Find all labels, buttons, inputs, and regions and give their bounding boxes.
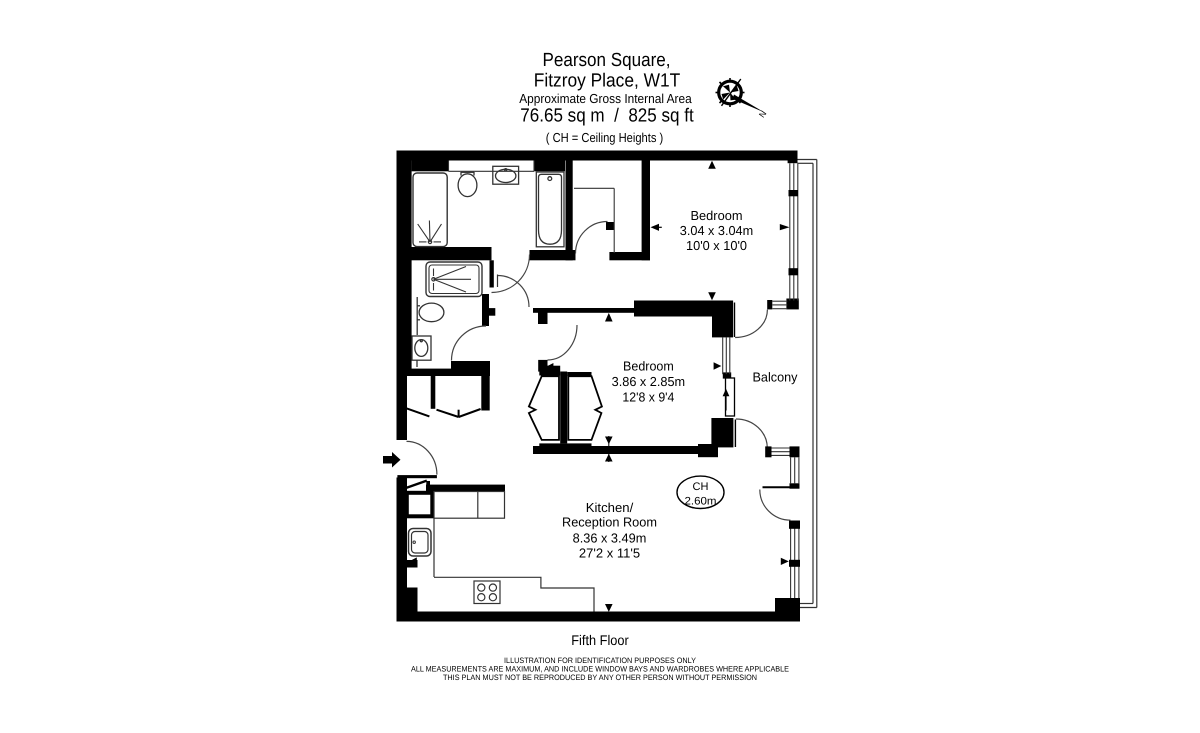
svg-text:THIS PLAN MUST NOT BE REPRODUC: THIS PLAN MUST NOT BE REPRODUCED BY ANY … <box>443 673 757 682</box>
svg-text:Pearson Square,: Pearson Square, <box>543 50 671 71</box>
svg-text:( CH = Ceiling Heights ): ( CH = Ceiling Heights ) <box>546 130 664 145</box>
svg-text:8.36 x 3.49m: 8.36 x 3.49m <box>573 531 647 546</box>
svg-text:Bedroom: Bedroom <box>623 358 674 373</box>
svg-text:Balcony: Balcony <box>753 370 798 385</box>
svg-text:10'0 x 10'0: 10'0 x 10'0 <box>686 238 747 253</box>
svg-text:27'2 x 11'5: 27'2 x 11'5 <box>579 546 640 561</box>
svg-text:3.86 x 2.85m: 3.86 x 2.85m <box>612 374 686 389</box>
svg-text:3.04 x 3.04m: 3.04 x 3.04m <box>680 223 753 238</box>
svg-text:Reception Room: Reception Room <box>562 514 657 529</box>
svg-text:Bedroom: Bedroom <box>691 208 743 223</box>
svg-text:CH: CH <box>693 481 709 493</box>
svg-text:Fitzroy Place, W1T: Fitzroy Place, W1T <box>534 71 681 92</box>
svg-text:2.60m: 2.60m <box>685 495 717 507</box>
svg-text:76.65 sq m / 825 sq ft: 76.65 sq m / 825 sq ft <box>520 106 694 127</box>
svg-text:Approximate Gross Internal Are: Approximate Gross Internal Area <box>519 91 692 106</box>
svg-text:Kitchen/: Kitchen/ <box>586 500 634 515</box>
svg-text:12'8 x 9'4: 12'8 x 9'4 <box>622 389 674 404</box>
svg-text:Fifth Floor: Fifth Floor <box>571 632 629 648</box>
